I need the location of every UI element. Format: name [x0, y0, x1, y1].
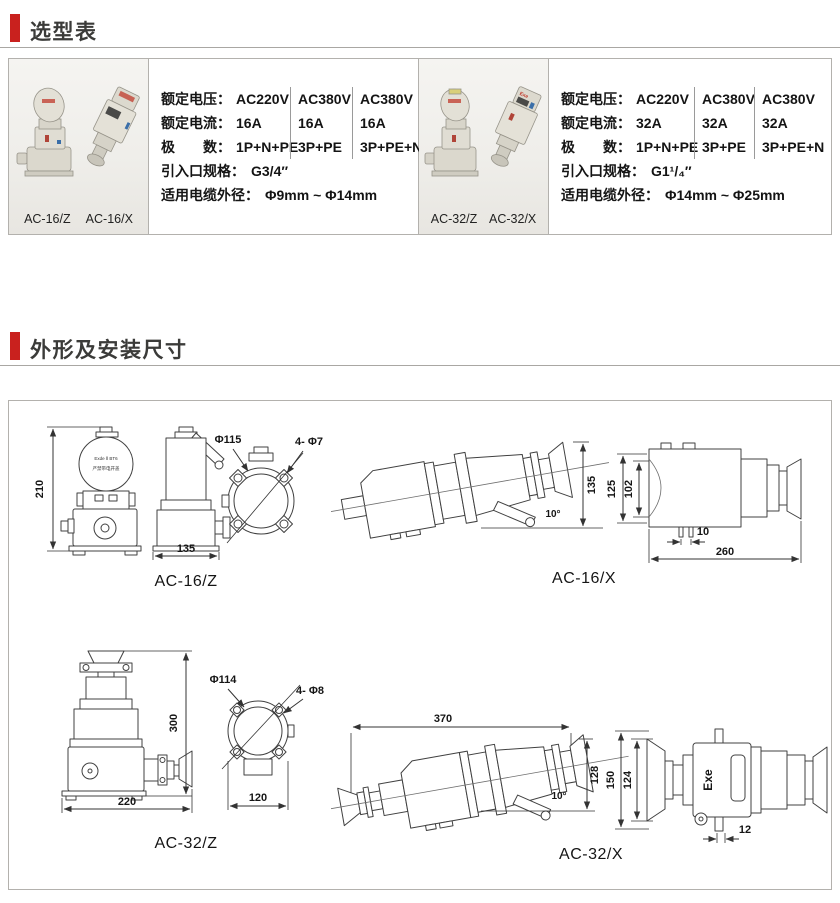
dim-height: 300 — [168, 714, 180, 732]
spec-value: 32A — [694, 111, 754, 135]
product-photos-ac16 — [9, 85, 149, 185]
spec-inlet-row: 引入口规格：G1¹/₄″ — [549, 159, 831, 183]
spec-value: 1P+N+PE — [236, 139, 298, 155]
spec-current-row: 额定电流：16A — [149, 111, 290, 135]
ac16x-tilted-view — [331, 428, 618, 561]
spec-cable-row: 适用电缆外径：Φ9mm ~ Φ14mm — [149, 183, 418, 207]
spec-label: 额定电压： — [561, 91, 631, 107]
section-header-selection: 选型表 — [0, 10, 840, 48]
body-exe-text: Exe — [701, 769, 715, 791]
spec-value: AC380V — [694, 87, 754, 111]
spec-value: 3P+PE — [694, 135, 754, 159]
spec-poles-row: 极 数：1P+N+PE — [149, 135, 290, 159]
spec-label: 极 数： — [561, 139, 631, 155]
ac32x-tilted-view — [331, 722, 637, 858]
dim-height: 210 — [34, 480, 46, 498]
cover-text-1: Exde Ⅱ BT6 — [94, 456, 118, 461]
dim-body-id: 102 — [623, 480, 635, 498]
dim-tilt: 10° — [545, 509, 560, 520]
ac16z-top-view: Φ115 4- Φ7 — [215, 434, 323, 543]
spec-value: Φ9mm ~ Φ14mm — [265, 187, 377, 203]
product-model-label: AC-32/Z — [431, 212, 478, 226]
ac16x-side-view: 125 102 10 — [606, 443, 801, 563]
product-photos-ac32: Exe — [419, 85, 549, 185]
spec-value: AC220V — [236, 91, 289, 107]
dim-body-od: 125 — [606, 480, 618, 498]
ac32z-top-view: Φ114 4- Φ8 120 — [210, 674, 324, 810]
spec-label: 适用电缆外径： — [161, 187, 259, 203]
spec-cable-row: 适用电缆外径：Φ14mm ~ Φ25mm — [549, 183, 831, 207]
spec-grid: 额定电压：AC220V AC380V AC380V 额定电流：16A 16A 1… — [149, 87, 418, 159]
spec-value: G3/4″ — [251, 163, 288, 179]
spec-value: AC220V — [636, 91, 689, 107]
spec-voltage-row: 额定电压：AC220V — [149, 87, 290, 111]
dim-foot-offset: 12 — [739, 824, 751, 836]
spec-value: 1P+N+PE — [636, 139, 698, 155]
spec-value: G1¹/₄″ — [651, 163, 692, 179]
spec-label: 额定电压： — [161, 91, 231, 107]
dim-body-od: 150 — [605, 771, 617, 789]
section-title: 外形及安装尺寸 — [30, 334, 188, 364]
spec-value: 16A — [352, 111, 422, 135]
ac16z-side-view: 135 — [153, 427, 230, 560]
drawing-ac32x: 370 — [331, 689, 831, 869]
spec-voltage-row: 额定电压：AC220V — [549, 87, 694, 111]
spec-poles-row: 极 数：1P+N+PE — [549, 135, 694, 159]
product-model-label: AC-16/X — [86, 212, 133, 226]
product-model-label: AC-16/Z — [24, 212, 71, 226]
spec-label: 额定电流： — [561, 115, 631, 131]
spec-value: AC380V — [352, 87, 422, 111]
spec-value: 32A — [754, 111, 831, 135]
product-photo-cell-ac32: Exe AC-32/Z AC-32/X — [419, 59, 549, 234]
drawing-ac16x: 135 10° 125 102 — [331, 411, 831, 601]
dim-length: 260 — [716, 546, 734, 558]
section-header-dimensions: 外形及安装尺寸 — [0, 328, 840, 366]
dim-body-id: 124 — [622, 770, 634, 789]
spec-grid: 额定电压：AC220V AC380V AC380V 额定电流：32A 32A 3… — [549, 87, 831, 159]
dim-foot-offset: 10 — [697, 526, 709, 538]
dim-mount-holes: 4- Φ8 — [296, 685, 324, 697]
spec-value: AC380V — [754, 87, 831, 111]
spec-value: Φ14mm ~ Φ25mm — [665, 187, 785, 203]
spec-current-row: 额定电流：32A — [549, 111, 694, 135]
spec-inlet-row: 引入口规格：G3/4″ — [149, 159, 418, 183]
drawing-label: AC-16/X — [552, 570, 616, 587]
spec-value: 16A — [290, 111, 352, 135]
dim-tilt: 10° — [551, 791, 566, 802]
product-photo-labels: AC-32/Z AC-32/X — [419, 212, 548, 226]
spec-label: 引入口规格： — [561, 163, 645, 179]
drawing-label: AC-16/Z — [154, 573, 217, 590]
dim-length: 370 — [434, 713, 452, 725]
drawing-label: AC-32/Z — [154, 835, 217, 852]
spec-label: 适用电缆外径： — [561, 187, 659, 203]
spec-value: 32A — [636, 115, 662, 131]
catalog-page: 选型表 — [0, 0, 840, 903]
spec-label: 额定电流： — [161, 115, 231, 131]
cover-text-2: 严禁带电开盖 — [93, 465, 120, 472]
spec-cell-ac16: 额定电压：AC220V AC380V AC380V 额定电流：16A 16A 1… — [149, 59, 419, 234]
drawing-ac16z: 210 Exde Ⅱ BT6 严禁带电开盖 — [21, 409, 341, 599]
product-photo-labels: AC-16/Z AC-16/X — [9, 212, 148, 226]
dimension-drawings: 210 Exde Ⅱ BT6 严禁带电开盖 — [8, 400, 832, 890]
spec-label: 引入口规格： — [161, 163, 245, 179]
product-photo-cell-ac16: AC-16/Z AC-16/X — [9, 59, 149, 234]
drawing-label: AC-32/X — [559, 846, 623, 863]
dim-mount-circle: Φ115 — [215, 434, 242, 446]
product-photo-ac16x — [79, 85, 143, 171]
product-photo-ac32z — [425, 85, 478, 176]
product-model-label: AC-32/X — [489, 212, 536, 226]
drawing-ac32z: 300 220 — [16, 641, 346, 866]
spec-value: 3P+PE+N — [352, 135, 422, 159]
product-photo-ac32x: Exe — [483, 85, 545, 171]
dim-height: 135 — [586, 476, 598, 494]
dim-flange-width: 120 — [249, 792, 267, 804]
section-title: 选型表 — [30, 16, 98, 46]
red-accent-bar — [10, 14, 20, 42]
selection-table: AC-16/Z AC-16/X 额定电压：AC220V AC380V AC380… — [8, 58, 832, 235]
spec-value: AC380V — [290, 87, 352, 111]
spec-value: 16A — [236, 115, 262, 131]
red-accent-bar — [10, 332, 20, 360]
ac32x-side-view: 150 124 Exe — [605, 729, 827, 843]
dim-mount-circle: Φ114 — [210, 674, 238, 686]
spec-value: 3P+PE — [290, 135, 352, 159]
ac16z-front-view: Exde Ⅱ BT6 严禁带电开盖 — [61, 427, 141, 555]
dim-mount-holes: 4- Φ7 — [295, 436, 323, 448]
spec-label: 极 数： — [161, 139, 231, 155]
spec-value: 3P+PE+N — [754, 135, 831, 159]
dim-height: 128 — [589, 766, 601, 784]
product-photo-ac16z — [17, 85, 73, 176]
spec-cell-ac32: 额定电压：AC220V AC380V AC380V 额定电流：32A 32A 3… — [549, 59, 831, 234]
dim-base-width: 135 — [177, 543, 195, 555]
dim-base-width: 220 — [118, 796, 136, 808]
